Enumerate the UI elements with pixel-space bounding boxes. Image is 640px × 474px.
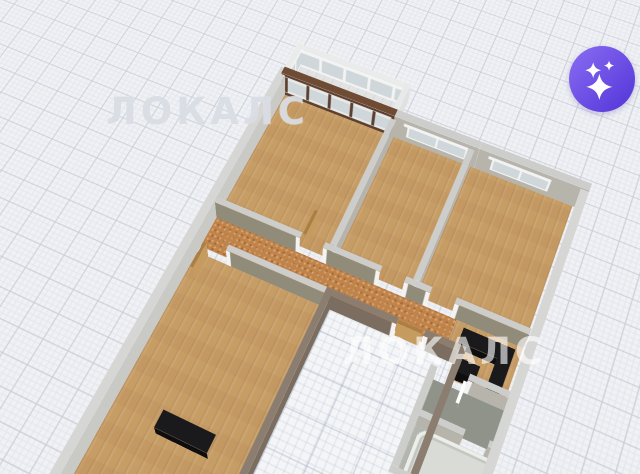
- watermark-text-center: ЛОКАЛС: [343, 330, 546, 373]
- watermark-text-top: ЛОКАЛС: [106, 90, 309, 133]
- floorplan-3d-view[interactable]: [0, 0, 640, 474]
- ai-assistant-button[interactable]: [569, 46, 635, 112]
- floorplan-app-screen: ЛОКАЛС ЛОКАЛС: [0, 0, 640, 474]
- sparkles-icon: [580, 57, 624, 101]
